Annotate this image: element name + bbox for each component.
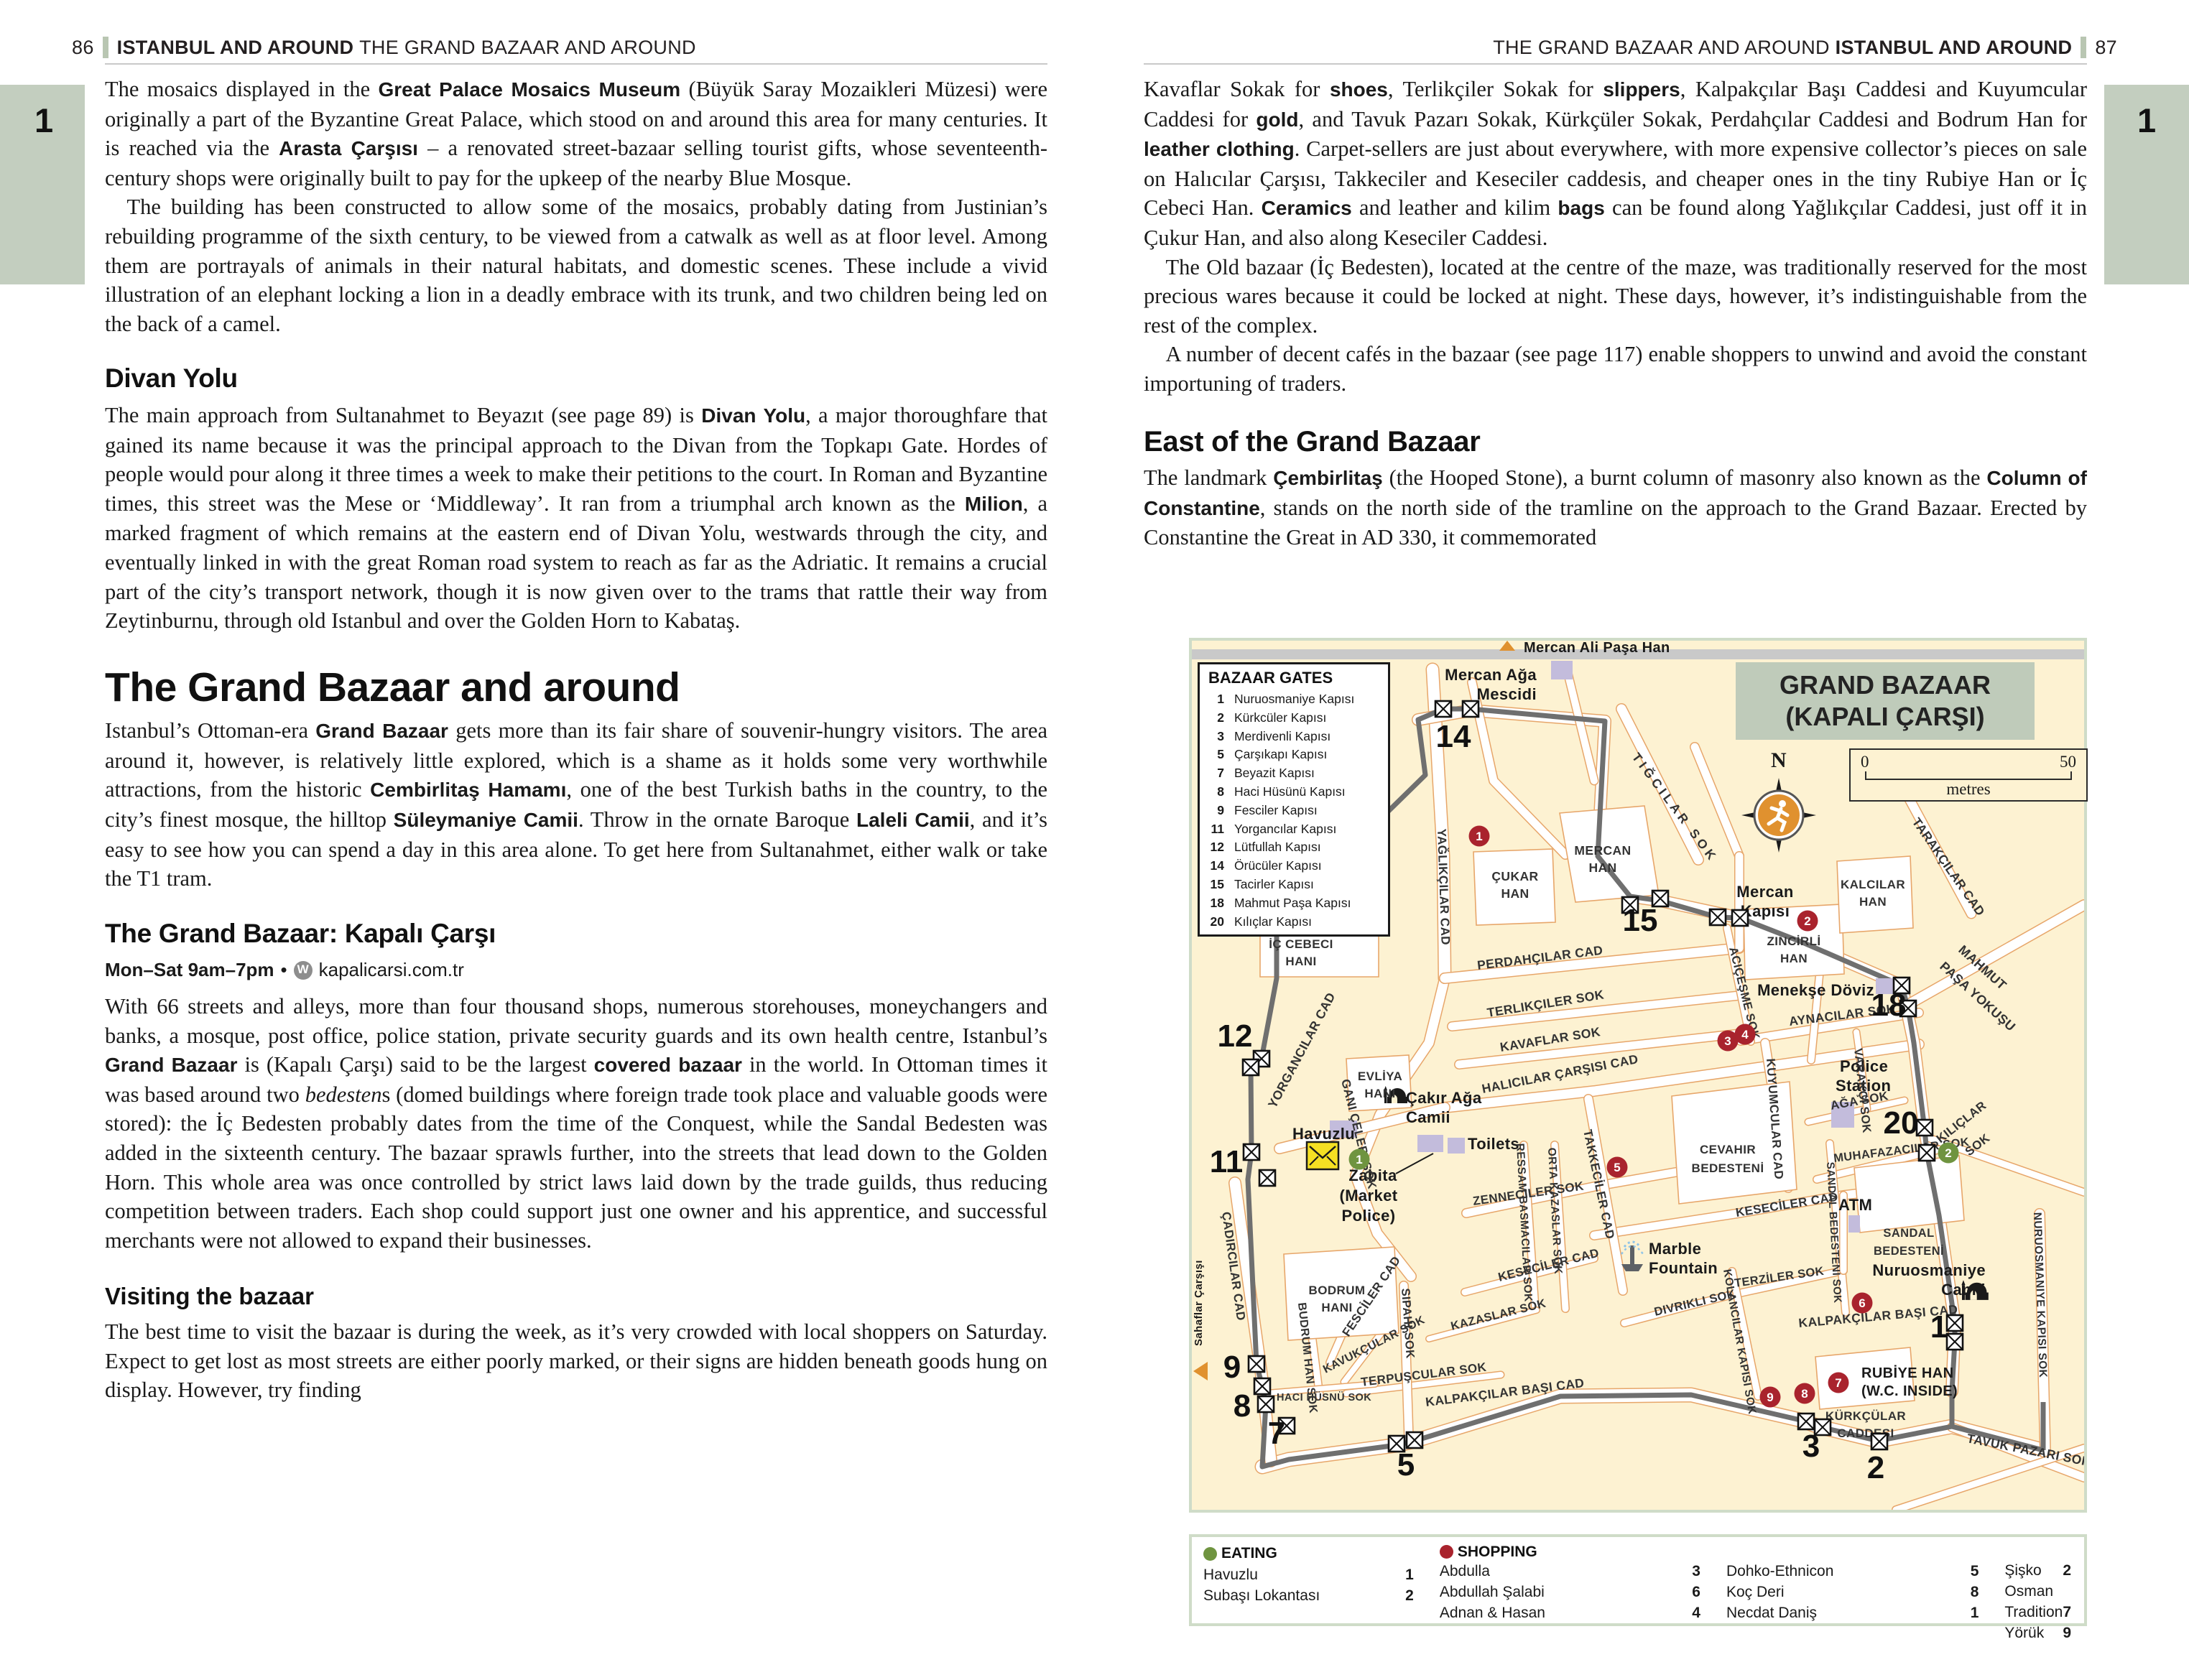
shopping-dot-icon bbox=[1440, 1545, 1453, 1559]
key-row: Abdulla3 bbox=[1440, 1561, 1700, 1582]
map-label: KALCILAR bbox=[1841, 878, 1905, 891]
map-label: İÇ CEBECI bbox=[1269, 937, 1333, 951]
eating-dot-icon bbox=[1203, 1547, 1217, 1561]
gate-list-row: 7Beyazit Kapısı bbox=[1203, 764, 1382, 783]
chapter-tab-right: 1 bbox=[2104, 85, 2189, 284]
scale-bar: 0 50 metres bbox=[1849, 748, 2088, 802]
key-row: Tradition7 bbox=[2004, 1602, 2071, 1623]
map-label: HAN bbox=[1859, 895, 1887, 909]
gate-marker-icon bbox=[1259, 1170, 1275, 1186]
map-label: Menekşe Döviz bbox=[1757, 981, 1874, 999]
map-label: HACI HÜSNÜ SOK bbox=[1277, 1391, 1371, 1403]
map-label: HANI bbox=[1285, 955, 1316, 968]
gate-number: 18 bbox=[1871, 988, 1907, 1023]
running-head-left: 86 ISTANBUL AND AROUND THE GRAND BAZAAR … bbox=[72, 33, 696, 62]
map-label: EVLİYA bbox=[1358, 1069, 1402, 1083]
gate-number: 5 bbox=[1397, 1447, 1415, 1482]
key-row: Yörük9 bbox=[2004, 1623, 2071, 1643]
gate-number: 8 bbox=[1234, 1388, 1251, 1424]
map-label: Mercan Ali Paşa Han bbox=[1524, 641, 1670, 656]
gate-list-row: 1Nuruosmaniye Kapısı bbox=[1203, 690, 1382, 709]
gate-list-row: 9Fesciler Kapısı bbox=[1203, 802, 1382, 820]
map-label: HANI bbox=[1321, 1301, 1352, 1314]
map-label: KAZASLAR SOK bbox=[1450, 1297, 1547, 1333]
eating-header: EATING bbox=[1203, 1543, 1414, 1564]
map-label: CEVAHIR bbox=[1700, 1143, 1756, 1156]
map-key: EATING Havuzlu1Subaşı Lokantası2 SHOPPIN… bbox=[1189, 1534, 2087, 1626]
map-label: Havuzlu bbox=[1292, 1125, 1355, 1143]
key-row: Havuzlu1 bbox=[1203, 1564, 1414, 1585]
gate-marker-icon bbox=[1917, 1120, 1933, 1136]
key-row: Şişko Osman2 bbox=[2004, 1560, 2071, 1602]
header-subsection: THE GRAND BAZAAR AND AROUND bbox=[1493, 37, 1830, 59]
paragraph: The mosaics displayed in the Great Palac… bbox=[105, 75, 1047, 192]
header-section: ISTANBUL AND AROUND bbox=[117, 37, 354, 59]
bazaar-gates-legend: BAZAAR GATES 1Nuruosmaniye Kapısı2Kürkcü… bbox=[1198, 662, 1390, 937]
gate-marker-icon bbox=[1435, 701, 1451, 717]
gate-list-row: 15Tacirler Kapısı bbox=[1203, 876, 1382, 894]
paragraph: Kavaflar Sokak for shoes, Terlikçiler So… bbox=[1144, 75, 2087, 253]
svg-text:2: 2 bbox=[1804, 914, 1810, 928]
post-office-icon bbox=[1307, 1142, 1338, 1169]
header-rule-left bbox=[105, 63, 1047, 65]
chapter-tab-left: 1 bbox=[0, 85, 85, 284]
gate-list-row: 5Çarşıkapı Kapısı bbox=[1203, 746, 1382, 764]
map-label: ZINCİRLİ bbox=[1767, 934, 1821, 948]
building bbox=[1854, 1156, 1964, 1233]
map-label: HAN bbox=[1501, 886, 1529, 901]
gate-marker-icon bbox=[1871, 1434, 1887, 1449]
header-rule-right bbox=[1144, 63, 2087, 65]
offmap-arrow-icon bbox=[1193, 1362, 1208, 1380]
map-label: ATM bbox=[1838, 1196, 1872, 1214]
gate-list-row: 11Yorgancılar Kapısı bbox=[1203, 820, 1382, 839]
map-label: Toilets bbox=[1468, 1135, 1519, 1153]
paragraph: The building has been constructed to all… bbox=[105, 192, 1047, 338]
map-label: ÇUKAR bbox=[1491, 869, 1538, 883]
page-number-left: 86 bbox=[72, 37, 94, 59]
paragraph: The landmark Çembirlitaş (the Hooped Sto… bbox=[1144, 463, 2087, 552]
map-label: Police) bbox=[1342, 1207, 1396, 1225]
map-title: GRAND BAZAAR (KAPALI ÇARŞI) bbox=[1736, 662, 2035, 740]
gate-marker-icon bbox=[1249, 1356, 1264, 1372]
map-label: Sahaflar Çarşışı bbox=[1193, 1260, 1205, 1346]
gate-number: 3 bbox=[1802, 1429, 1820, 1464]
section-heading-kapali: The Grand Bazaar: Kapalı Çarşı bbox=[105, 919, 1047, 949]
header-green-bar bbox=[2081, 37, 2086, 58]
gate-number: 7 bbox=[1268, 1416, 1285, 1451]
section-heading-divan: Divan Yolu bbox=[105, 364, 1047, 394]
svg-text:8: 8 bbox=[1801, 1387, 1808, 1401]
svg-text:9: 9 bbox=[1767, 1391, 1773, 1404]
poi-building bbox=[1448, 1138, 1465, 1154]
gate-list-row: 12Lütfullah Kapısı bbox=[1203, 838, 1382, 857]
map-label: BODRUM bbox=[1309, 1284, 1366, 1297]
map-label: RUBİYE HAN bbox=[1861, 1365, 1953, 1381]
practical-info-line: Mon–Sat 9am–7pm • W kapalicarsi.com.tr bbox=[105, 955, 1047, 985]
gate-marker-icon bbox=[1947, 1315, 1963, 1331]
key-row: Abdullah Şalabi6 bbox=[1440, 1582, 1700, 1602]
paragraph: A number of decent cafés in the bazaar (… bbox=[1144, 340, 2087, 398]
map-label: TARAKÇILAR CAD bbox=[1910, 815, 1988, 919]
gate-number: 14 bbox=[1436, 719, 1471, 754]
map-label: KÜRKÇÜLAR bbox=[1825, 1409, 1906, 1423]
map-label: HANI bbox=[1364, 1087, 1395, 1100]
left-column: The mosaics displayed in the Great Palac… bbox=[105, 75, 1047, 1405]
svg-text:4: 4 bbox=[1741, 1028, 1749, 1041]
map-label: DIVRIKLI SOK bbox=[1653, 1287, 1737, 1319]
section-heading-east: East of the Grand Bazaar bbox=[1144, 427, 2087, 457]
map-label: Çakır Ağa bbox=[1406, 1089, 1482, 1107]
grand-bazaar-map: Mercan Ali Paşa HanMercan AğaMescidiMERC… bbox=[1189, 638, 2087, 1513]
map-label: Mescidi bbox=[1477, 685, 1537, 703]
svg-text:6: 6 bbox=[1859, 1296, 1865, 1310]
paragraph: Istanbul’s Ottoman-era Grand Bazaar gets… bbox=[105, 716, 1047, 894]
map-label: BEDESTENİ bbox=[1692, 1161, 1764, 1175]
north-label: N bbox=[1771, 748, 1787, 773]
key-row: Adnan & Hasan4 bbox=[1440, 1602, 1700, 1623]
poi-building bbox=[1848, 1215, 1860, 1233]
map-label: HAN bbox=[1588, 860, 1616, 875]
gate-marker-icon bbox=[1244, 1144, 1259, 1160]
svg-text:1: 1 bbox=[1356, 1153, 1362, 1166]
map-label: Nuruosmaniye bbox=[1872, 1261, 1986, 1279]
gate-marker-icon bbox=[1254, 1378, 1270, 1394]
gate-list-row: 14Örücüler Kapısı bbox=[1203, 857, 1382, 876]
gate-list-row: 3Merdivenli Kapısı bbox=[1203, 728, 1382, 746]
key-row: Dohko-Ethnicon5 bbox=[1726, 1561, 1979, 1582]
map-label: Camii bbox=[1941, 1281, 1986, 1299]
map-label: NURUOSMANIYE KAPISI SOK bbox=[2031, 1212, 2049, 1378]
svg-text:5: 5 bbox=[1614, 1161, 1620, 1174]
gate-marker-icon bbox=[1243, 1059, 1259, 1075]
gate-number: 2 bbox=[1867, 1450, 1884, 1485]
header-green-bar bbox=[103, 37, 108, 58]
gate-list-row: 20Kılıçlar Kapısı bbox=[1203, 913, 1382, 932]
gate-number: 12 bbox=[1218, 1018, 1253, 1054]
subsection-heading-visiting: Visiting the bazaar bbox=[105, 1282, 1047, 1312]
shopping-header: SHOPPING bbox=[1440, 1543, 1700, 1561]
map-label: Camii bbox=[1406, 1108, 1450, 1126]
gate-marker-icon bbox=[1947, 1334, 1963, 1350]
map-label: Mercan Ağa bbox=[1445, 666, 1537, 684]
website-url: kapalicarsi.com.tr bbox=[319, 955, 464, 985]
map-label: SANDAL bbox=[1883, 1227, 1934, 1240]
paragraph: The Old bazaar (İç Bedesten), located at… bbox=[1144, 253, 2087, 340]
gate-list-row: 8Haci Hüsünü Kapısı bbox=[1203, 783, 1382, 802]
header-section: ISTANBUL AND AROUND bbox=[1836, 37, 2073, 59]
poi-building bbox=[1551, 661, 1573, 679]
opening-hours: Mon–Sat 9am–7pm bbox=[105, 955, 274, 985]
website-icon: W bbox=[294, 961, 313, 980]
map-label: BEDESTENİ bbox=[1874, 1245, 1944, 1258]
map-label: Marble bbox=[1649, 1240, 1701, 1258]
right-column: Kavaflar Sokak for shoes, Terlikçiler So… bbox=[1144, 75, 2087, 552]
key-row: Necdat Daniş1 bbox=[1726, 1602, 1979, 1623]
chapter-heading-grand-bazaar: The Grand Bazaar and around bbox=[105, 673, 1047, 702]
svg-text:3: 3 bbox=[1724, 1034, 1731, 1048]
poi-triangle-icon bbox=[1499, 641, 1515, 651]
gate-marker-icon bbox=[1798, 1414, 1814, 1429]
bullet-separator: • bbox=[281, 955, 287, 985]
gate-number: 20 bbox=[1884, 1105, 1919, 1141]
map-label: (W.C. INSIDE) bbox=[1861, 1383, 1958, 1399]
fountain-icon bbox=[1621, 1242, 1643, 1271]
key-row: Koç Deri8 bbox=[1726, 1582, 1979, 1602]
gate-marker-icon bbox=[1407, 1432, 1422, 1448]
paragraph: The main approach from Sultanahmet to Be… bbox=[105, 401, 1047, 636]
gate-list-row: 2Kürkcüler Kapısı bbox=[1203, 709, 1382, 728]
gate-marker-icon bbox=[1258, 1396, 1274, 1412]
compass-icon bbox=[1739, 776, 1818, 855]
gate-number: 11 bbox=[1210, 1144, 1244, 1179]
map-label: YORGANCILAR CAD bbox=[1265, 990, 1338, 1110]
paragraph: The best time to visit the bazaar is dur… bbox=[105, 1317, 1047, 1405]
gate-marker-icon bbox=[1463, 701, 1478, 717]
svg-text:1: 1 bbox=[1476, 830, 1482, 843]
page-number-right: 87 bbox=[2095, 37, 2117, 59]
poi-building bbox=[1417, 1135, 1443, 1152]
gate-number: 9 bbox=[1223, 1350, 1241, 1385]
map-label: HAN bbox=[1780, 952, 1808, 965]
map-label: Fountain bbox=[1649, 1259, 1718, 1277]
paragraph: With 66 streets and alleys, more than fo… bbox=[105, 992, 1047, 1255]
svg-text:2: 2 bbox=[1945, 1146, 1951, 1160]
gate-marker-icon bbox=[1732, 910, 1748, 926]
gate-marker-icon bbox=[1710, 909, 1726, 925]
running-head-right: THE GRAND BAZAAR AND AROUND ISTANBUL AND… bbox=[1493, 33, 2117, 62]
map-label: MERCAN bbox=[1574, 843, 1631, 858]
gate-number: 15 bbox=[1623, 903, 1658, 938]
key-row: Subaşı Lokantası2 bbox=[1203, 1585, 1414, 1606]
gate-number: 1 bbox=[1930, 1309, 1948, 1345]
gate-marker-icon bbox=[1919, 1145, 1935, 1161]
svg-text:7: 7 bbox=[1835, 1376, 1841, 1390]
gate-list-row: 18Mahmut Paşa Kapısı bbox=[1203, 894, 1382, 913]
header-subsection: THE GRAND BAZAAR AND AROUND bbox=[359, 37, 696, 59]
map-label: Mercan bbox=[1736, 883, 1793, 901]
